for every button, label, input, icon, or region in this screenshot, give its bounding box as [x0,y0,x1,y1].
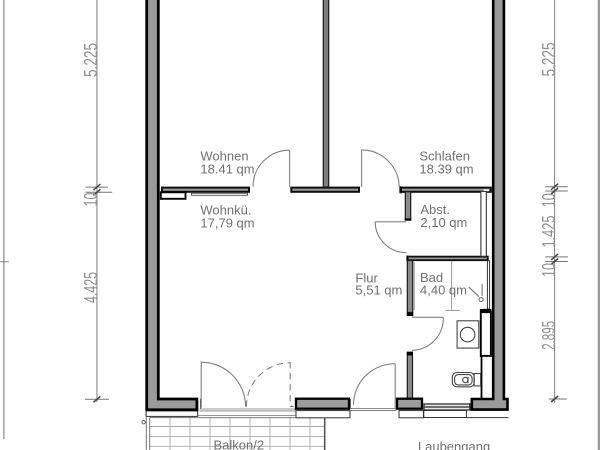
svg-text:10: 10 [538,263,559,277]
svg-text:4,40 qm: 4,40 qm [420,283,467,298]
svg-text:5.225: 5.225 [80,43,101,77]
svg-text:4.425: 4.425 [80,272,101,303]
svg-text:2,10 qm: 2,10 qm [420,215,467,230]
svg-text:10: 10 [80,193,101,207]
svg-text:Balkon/2: Balkon/2 [214,437,265,450]
svg-text:Laubengang: Laubengang [418,439,490,450]
svg-text:18.41 qm: 18.41 qm [200,162,254,177]
svg-text:1.425: 1.425 [538,216,559,248]
svg-text:10: 10 [538,193,559,207]
svg-text:18.39 qm: 18.39 qm [419,162,473,177]
svg-text:5.225: 5.225 [538,43,559,77]
svg-text:5,51 qm: 5,51 qm [355,283,402,298]
svg-text:2.895: 2.895 [538,321,559,350]
svg-text:17,79 qm: 17,79 qm [200,216,254,231]
